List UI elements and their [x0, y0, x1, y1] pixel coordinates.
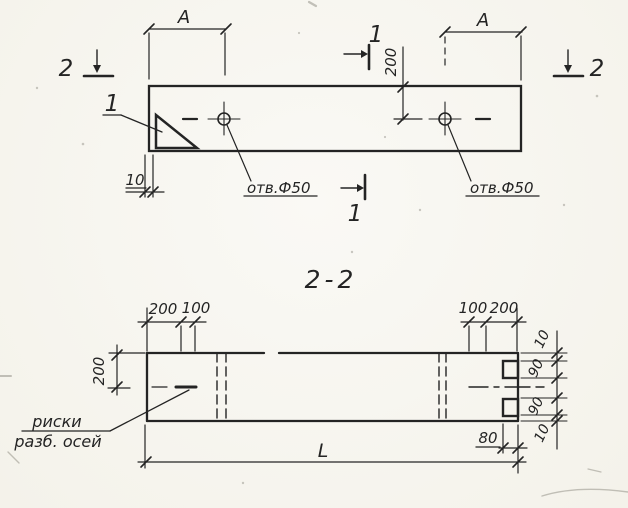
scan-speck — [298, 32, 300, 34]
scan-artifact — [542, 489, 628, 496]
detail-callout-1: 1 — [103, 91, 162, 132]
section-mark-2-right: 2 — [554, 50, 604, 82]
scan-speck — [419, 209, 421, 211]
scan-artifact — [588, 469, 601, 472]
hidden-hole-left — [217, 353, 226, 421]
scan-speck — [36, 87, 38, 89]
hole-left: отв.Ф50 — [183, 102, 317, 197]
scan-speck — [596, 95, 599, 98]
scan-speck — [563, 204, 565, 206]
dim-10-top-label: 10 — [531, 328, 553, 351]
dim-100-top-right-label: 100 — [459, 299, 488, 317]
dim-100-top-left-label: 100 — [182, 299, 211, 317]
dimension-200-half-width: 200 — [90, 345, 145, 395]
dim-200-side-label: 200 — [90, 357, 108, 386]
scan-speck — [351, 251, 353, 253]
section-view: 2-2 — [13, 265, 567, 473]
top-view: 1 отв.Ф50 отв.Ф50 — [59, 7, 605, 227]
dimension-200-100-left: 200 100 — [138, 299, 210, 351]
dimension-100-200-right: 100 200 — [459, 299, 526, 351]
section-1-bottom-label: 1 — [348, 201, 363, 227]
section-arrowhead — [361, 50, 368, 58]
scan-speck — [384, 136, 386, 138]
section-view-title: 2-2 — [305, 265, 358, 294]
dimension-10-chamfer: 10 — [125, 155, 164, 197]
beam-outline-section — [147, 353, 518, 421]
section-arrowhead — [93, 65, 101, 73]
dim-200-top-right-label: 200 — [490, 299, 519, 317]
note-leader — [110, 390, 189, 431]
hole-right-label: отв.Ф50 — [470, 179, 534, 197]
hole-right: отв.Ф50 — [429, 102, 539, 197]
hole-left-label: отв.Ф50 — [247, 179, 311, 197]
section-arrowhead — [564, 65, 572, 73]
section-mark-1-bottom: 1 — [341, 175, 365, 227]
hole-right-leader — [448, 125, 471, 181]
dim-10-bottom-label: 10 — [531, 422, 553, 445]
dim-a-left-label: А — [177, 7, 190, 28]
hidden-hole-right — [439, 353, 446, 421]
technical-drawing: 1 отв.Ф50 отв.Ф50 — [0, 0, 628, 508]
scan-speck — [242, 482, 244, 484]
dim-80-label: 80 — [478, 429, 497, 447]
dim-a-right-label: А — [476, 10, 489, 31]
axes-note-line2: разб. осей — [13, 432, 101, 451]
scan-speck — [82, 143, 85, 146]
dim-L-label: L — [318, 440, 329, 462]
axes-note-line1: риски — [31, 412, 81, 431]
dimension-80: 80 — [476, 424, 527, 453]
section-1-top-label: 1 — [369, 22, 384, 48]
hole-left-leader — [227, 125, 251, 181]
dim-200-label: 200 — [382, 48, 400, 77]
drawing-sheet: 1 отв.Ф50 отв.Ф50 — [0, 0, 628, 508]
section-mark-1-top: 1 — [344, 22, 383, 69]
beam-outline-plan — [149, 86, 521, 151]
dim-10-label: 10 — [125, 171, 144, 189]
scan-artifact — [8, 452, 19, 463]
section-2-right-label: 2 — [590, 56, 605, 82]
section-arrowhead — [357, 184, 364, 192]
dimension-length-L: L — [138, 425, 526, 473]
dimension-a-right: А — [440, 10, 526, 80]
scan-artifact — [309, 2, 316, 6]
dim-90-top-label: 90 — [525, 357, 547, 380]
dimension-a-left: А — [144, 7, 231, 79]
section-2-left-label: 2 — [59, 56, 74, 82]
end-notch-lower — [503, 399, 518, 416]
section-mark-2-left: 2 — [59, 50, 113, 82]
end-notch-upper — [503, 361, 518, 378]
dimension-stack-right: 10 90 90 10 — [521, 328, 567, 449]
detail-callout-label: 1 — [105, 91, 120, 117]
dim-200-top-left-label: 200 — [149, 300, 178, 318]
